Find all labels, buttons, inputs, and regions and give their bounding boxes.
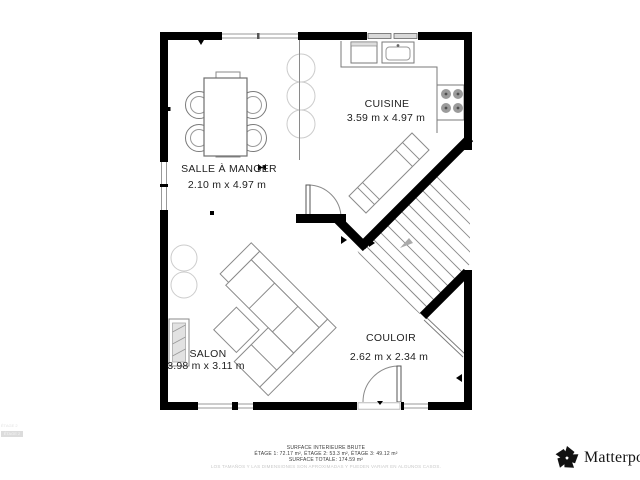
door-threshold bbox=[358, 403, 400, 409]
room-dims-salle-a-manger: 2.10 m x 4.97 m bbox=[188, 179, 266, 191]
interior-door bbox=[306, 185, 341, 218]
oven-icon bbox=[351, 42, 377, 63]
footer-summary: SURFACE INTERIEURE BRUTE ÉTAGE 1: 72.17 … bbox=[12, 445, 640, 470]
room-label-couloir: COULOIR bbox=[366, 332, 416, 344]
kitchen-sink-icon bbox=[382, 42, 414, 63]
watermark: ÉTAGE 2 ÉTAGE 2 bbox=[1, 423, 23, 437]
room-label-salle-a-manger: SALLE À MANGER bbox=[181, 162, 277, 175]
wall-console bbox=[169, 319, 189, 366]
footer-disclaimer: LOS TAMAÑOS Y LAS DIMENSIONES SON APROXI… bbox=[12, 464, 640, 470]
poufs bbox=[171, 245, 197, 298]
dining-table bbox=[204, 72, 247, 157]
brand-name: Matterport bbox=[584, 449, 640, 467]
watermark-box: ÉTAGE 2 bbox=[1, 431, 23, 437]
stair-railing bbox=[424, 318, 466, 358]
stairs-upper-flight bbox=[349, 133, 429, 213]
room-label-cuisine: CUISINE bbox=[365, 98, 410, 110]
footer-total: SURFACE TOTALE: 174.59 m² bbox=[12, 457, 640, 463]
room-label-salon: SALON bbox=[189, 348, 226, 360]
room-dims-salon: 3.98 m x 3.11 m bbox=[167, 360, 245, 372]
room-dims-cuisine: 3.59 m x 4.97 m bbox=[347, 112, 425, 124]
matterport-logo-icon bbox=[554, 444, 580, 472]
floor-plan-page: CUISINE 3.59 m x 4.97 m SALLE À MANGER 2… bbox=[0, 0, 640, 480]
entry-door bbox=[363, 366, 401, 402]
kitchen-circles bbox=[287, 54, 315, 138]
marker-icon bbox=[198, 40, 204, 45]
brand-matterport: Matterport bbox=[554, 444, 640, 472]
stairs bbox=[358, 175, 498, 358]
watermark-text: ÉTAGE 2 bbox=[1, 423, 23, 428]
stove-icon bbox=[437, 85, 464, 120]
room-dims-couloir: 2.62 m x 2.34 m bbox=[350, 351, 428, 363]
floor-plan: CUISINE 3.59 m x 4.97 m SALLE À MANGER 2… bbox=[0, 0, 640, 480]
sofa bbox=[183, 243, 336, 396]
